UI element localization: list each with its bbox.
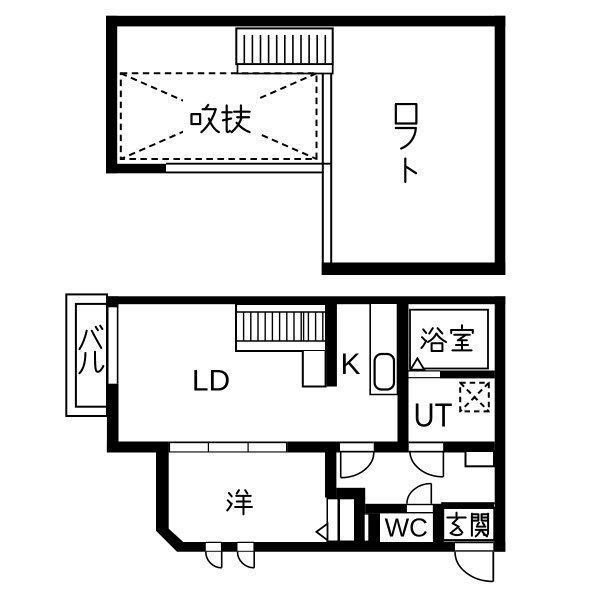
svg-text:K: K xyxy=(340,348,360,381)
svg-text:WC: WC xyxy=(385,513,428,543)
svg-text:LD: LD xyxy=(192,365,230,398)
svg-text:UT: UT xyxy=(414,397,453,434)
